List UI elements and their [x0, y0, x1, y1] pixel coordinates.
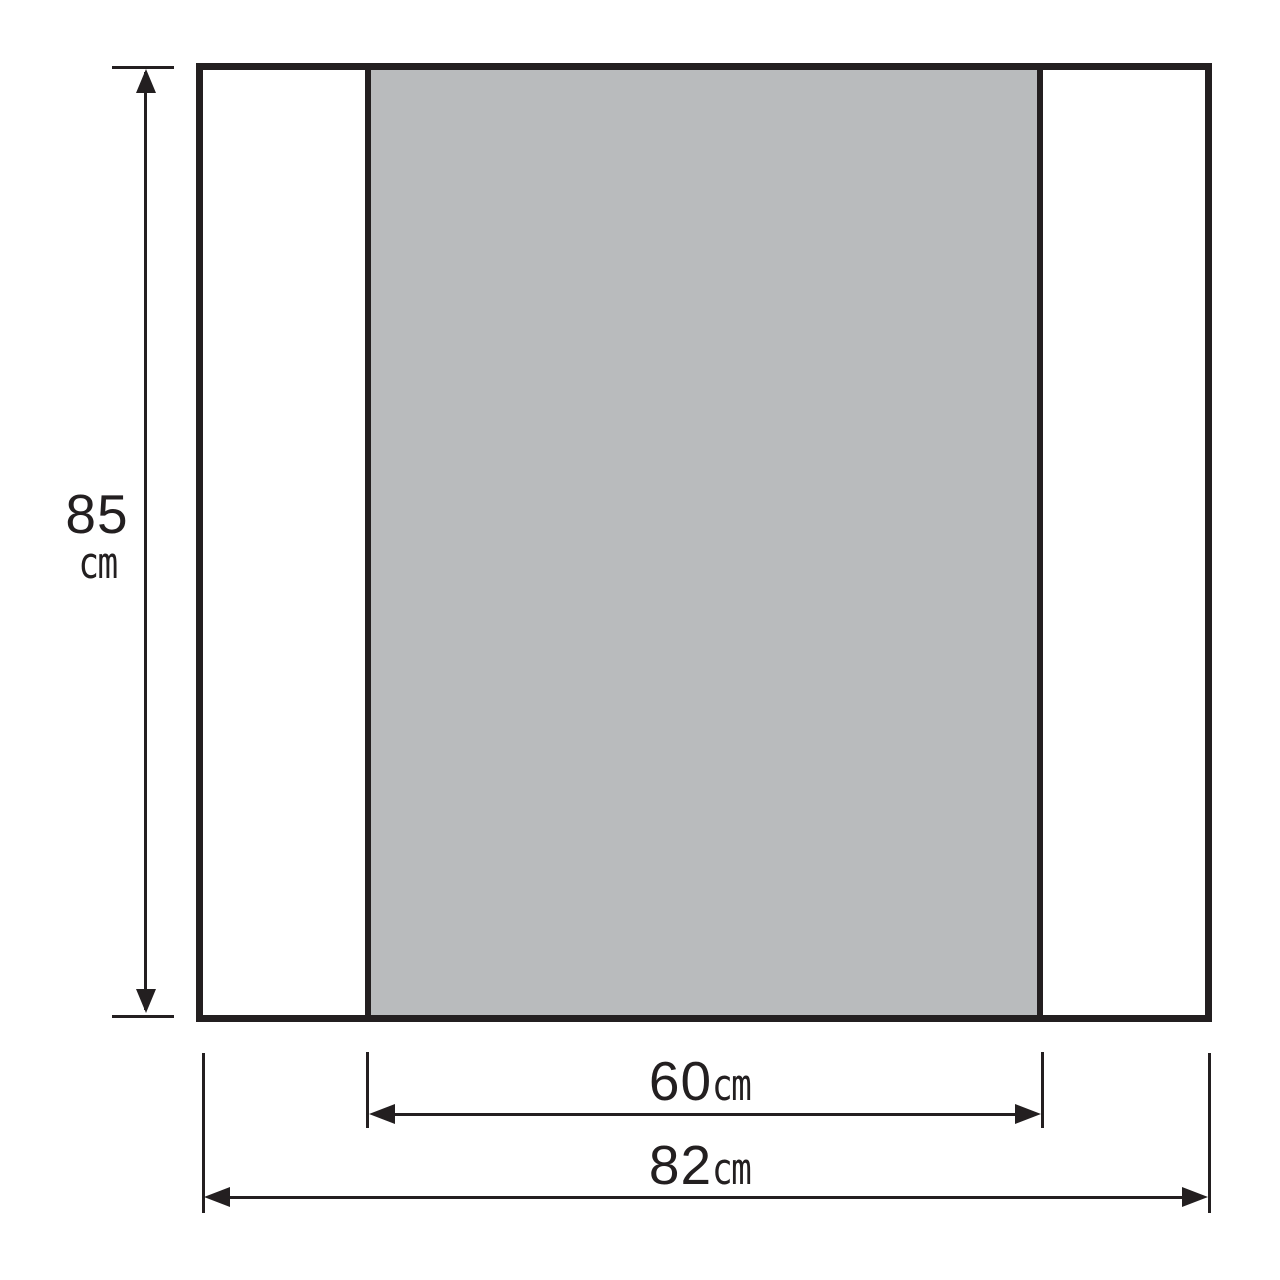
- total-width-unit: cm: [712, 1148, 750, 1192]
- arrow-down-icon: [136, 989, 156, 1013]
- arrow-left-icon: [369, 1104, 395, 1124]
- total-width-right-extension-line: [1208, 1053, 1211, 1213]
- center-panel: [365, 70, 1043, 1015]
- panel-width-dimension-label: 60cm: [555, 1054, 855, 1109]
- panel-width-right-extension-line: [1041, 1052, 1044, 1128]
- arrow-right-icon: [1015, 1104, 1041, 1124]
- height-dimension-label: 85 cm: [38, 487, 156, 586]
- height-value: 85: [38, 487, 156, 542]
- arrow-right-icon: [1182, 1187, 1208, 1207]
- total-width-dimension-line: [228, 1196, 1184, 1199]
- panel-width-dimension-line: [390, 1113, 1020, 1116]
- dimension-diagram: 85 cm 60cm 82cm: [0, 0, 1280, 1280]
- panel-width-unit: cm: [712, 1064, 750, 1108]
- total-width-value: 82: [649, 1134, 712, 1196]
- arrow-left-icon: [204, 1187, 230, 1207]
- total-width-dimension-label: 82cm: [555, 1138, 855, 1193]
- height-bottom-extension-tick: [112, 1015, 174, 1018]
- panel-width-value: 60: [649, 1050, 712, 1112]
- arrow-up-icon: [136, 69, 156, 93]
- height-unit: cm: [78, 542, 116, 586]
